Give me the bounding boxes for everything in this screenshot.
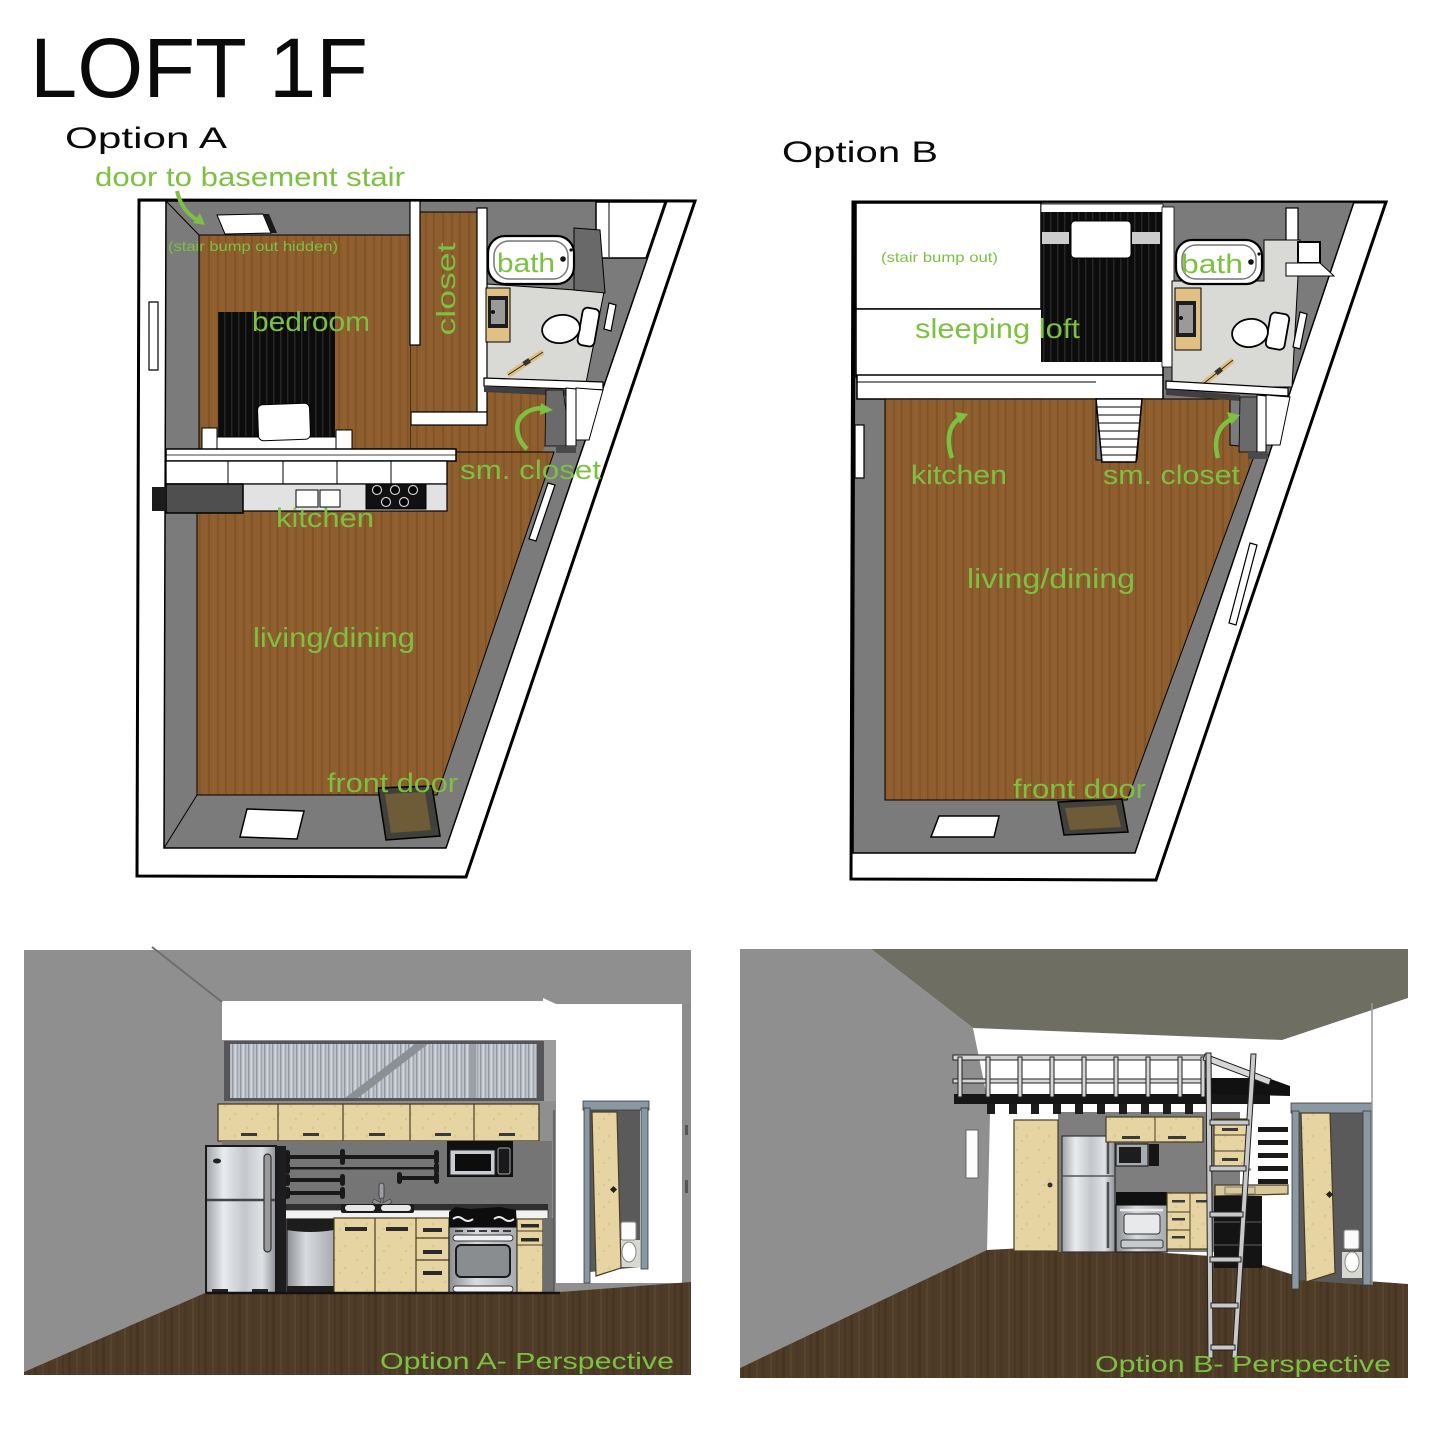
svg-text:Option B: Option B — [782, 136, 938, 169]
svg-text:bath: bath — [1181, 249, 1243, 279]
svg-text:door to basement stair: door to basement stair — [95, 162, 405, 192]
svg-text:living/dining: living/dining — [253, 622, 415, 653]
svg-text:sm. closet: sm. closet — [1103, 460, 1241, 490]
svg-text:bath: bath — [497, 248, 555, 278]
svg-text:bedroom: bedroom — [252, 306, 370, 337]
svg-text:closet: closet — [431, 241, 461, 335]
svg-text:sm. closet: sm. closet — [460, 455, 602, 485]
svg-text:(stair bump out hidden): (stair bump out hidden) — [168, 238, 338, 254]
svg-text:Option A: Option A — [65, 122, 227, 155]
svg-text:LOFT 1F: LOFT 1F — [30, 21, 368, 115]
svg-text:living/dining: living/dining — [967, 563, 1135, 594]
svg-text:(stair bump out): (stair bump out) — [881, 249, 998, 265]
svg-text:Option B- Perspective: Option B- Perspective — [1095, 1351, 1391, 1377]
svg-text:sleeping loft: sleeping loft — [915, 313, 1080, 344]
svg-text:kitchen: kitchen — [911, 460, 1007, 490]
svg-text:kitchen: kitchen — [276, 503, 374, 533]
svg-text:front door: front door — [1013, 774, 1146, 804]
svg-text:Option A- Perspective: Option A- Perspective — [380, 1348, 674, 1374]
svg-text:front door: front door — [327, 768, 458, 798]
